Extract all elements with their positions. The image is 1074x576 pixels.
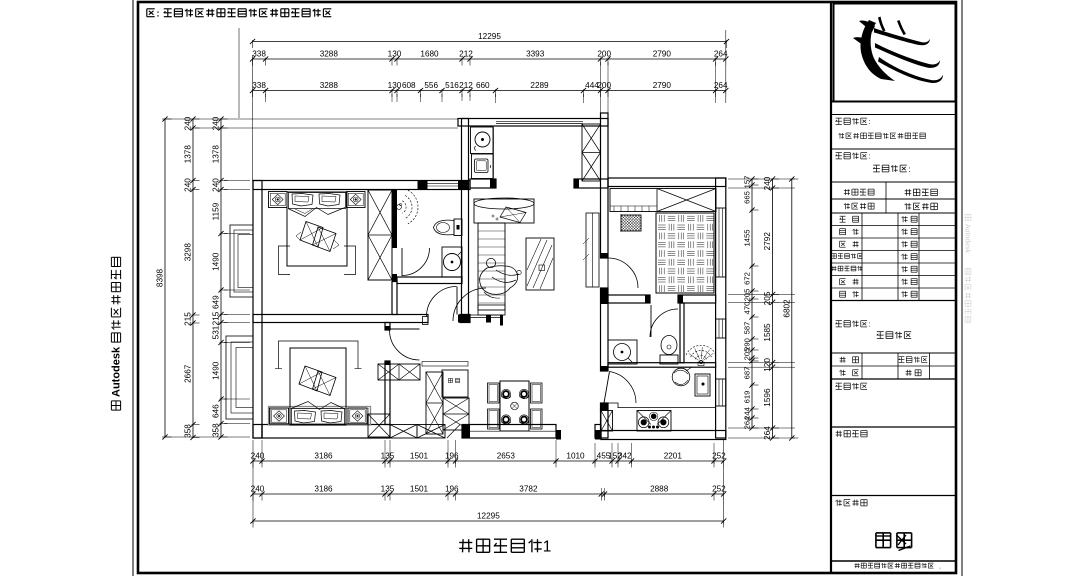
svg-text:Autodesk: Autodesk [964, 224, 971, 254]
svg-text:1596: 1596 [763, 388, 772, 407]
svg-text:3288: 3288 [320, 81, 339, 90]
svg-text:1501: 1501 [410, 452, 429, 461]
svg-text:196: 196 [445, 485, 459, 494]
svg-text:12295: 12295 [477, 512, 500, 521]
svg-text:2790: 2790 [653, 81, 672, 90]
svg-text:212: 212 [459, 81, 473, 90]
svg-text:1: 1 [543, 539, 552, 556]
svg-text:6802: 6802 [782, 299, 791, 318]
svg-text:264: 264 [743, 417, 752, 430]
svg-text:120: 120 [763, 358, 772, 372]
svg-text:205: 205 [763, 291, 772, 305]
svg-text:1378: 1378 [212, 145, 221, 164]
svg-text:3288: 3288 [320, 50, 339, 59]
svg-text:1378: 1378 [184, 145, 193, 164]
svg-text:157: 157 [743, 176, 752, 189]
svg-text:1455: 1455 [743, 230, 752, 247]
svg-text:240: 240 [184, 178, 193, 192]
svg-text:672: 672 [743, 272, 752, 285]
svg-text:200: 200 [597, 81, 611, 90]
svg-text::: : [909, 165, 911, 174]
svg-text:2289: 2289 [530, 81, 549, 90]
svg-text:1680: 1680 [420, 50, 439, 59]
svg-text:130: 130 [388, 50, 402, 59]
svg-text:1159: 1159 [212, 202, 221, 220]
svg-text:135: 135 [381, 452, 395, 461]
svg-text:1585: 1585 [763, 323, 772, 342]
svg-text:8398: 8398 [156, 268, 165, 287]
svg-text:2201: 2201 [664, 452, 683, 461]
svg-text:2792: 2792 [763, 232, 772, 251]
svg-text::: : [157, 9, 160, 19]
svg-text:2888: 2888 [650, 485, 669, 494]
svg-text:660: 660 [476, 81, 490, 90]
svg-text:358: 358 [212, 423, 221, 437]
svg-text:338: 338 [252, 50, 266, 59]
svg-text:2667: 2667 [184, 364, 193, 383]
svg-text:200: 200 [597, 50, 611, 59]
svg-text:531: 531 [212, 325, 221, 339]
svg-text::: : [869, 320, 871, 329]
svg-text:252: 252 [712, 485, 726, 494]
svg-text:342: 342 [618, 452, 632, 461]
svg-text:470: 470 [743, 302, 752, 315]
svg-text:2790: 2790 [653, 50, 672, 59]
svg-text:556: 556 [424, 81, 438, 90]
svg-text:649: 649 [212, 295, 221, 309]
svg-text:135: 135 [381, 485, 395, 494]
svg-text::: : [869, 117, 871, 126]
svg-text:196: 196 [445, 452, 459, 461]
svg-text:212: 212 [459, 50, 473, 59]
svg-text:3782: 3782 [519, 485, 538, 494]
svg-text:516: 516 [445, 81, 459, 90]
svg-text:215: 215 [184, 312, 193, 326]
svg-text:2653: 2653 [497, 452, 516, 461]
svg-text:338: 338 [252, 81, 266, 90]
svg-text:205: 205 [743, 289, 752, 302]
svg-text:12295: 12295 [478, 32, 501, 41]
svg-text:3186: 3186 [314, 485, 333, 494]
svg-text:3298: 3298 [184, 243, 193, 262]
svg-text:130: 130 [388, 81, 402, 90]
svg-text:.: . [939, 564, 941, 571]
svg-text:646: 646 [212, 404, 221, 418]
svg-text:1501: 1501 [410, 485, 429, 494]
svg-text:205: 205 [743, 348, 752, 361]
svg-text:1010: 1010 [566, 452, 585, 461]
svg-text:358: 358 [184, 424, 193, 438]
svg-text:587: 587 [743, 322, 752, 335]
svg-text:1490: 1490 [212, 252, 221, 271]
svg-text:687: 687 [743, 367, 752, 380]
svg-text:240: 240 [212, 178, 221, 192]
svg-text:240: 240 [184, 116, 193, 130]
svg-text:1490: 1490 [212, 361, 221, 380]
svg-text:608: 608 [402, 81, 416, 90]
svg-text:3186: 3186 [314, 452, 333, 461]
svg-text:Autodesk: Autodesk [111, 346, 123, 397]
svg-text:215: 215 [212, 311, 221, 325]
svg-text::: : [869, 152, 871, 161]
svg-text:3393: 3393 [526, 50, 545, 59]
svg-text:619: 619 [743, 391, 752, 404]
svg-text:665: 665 [743, 191, 752, 204]
